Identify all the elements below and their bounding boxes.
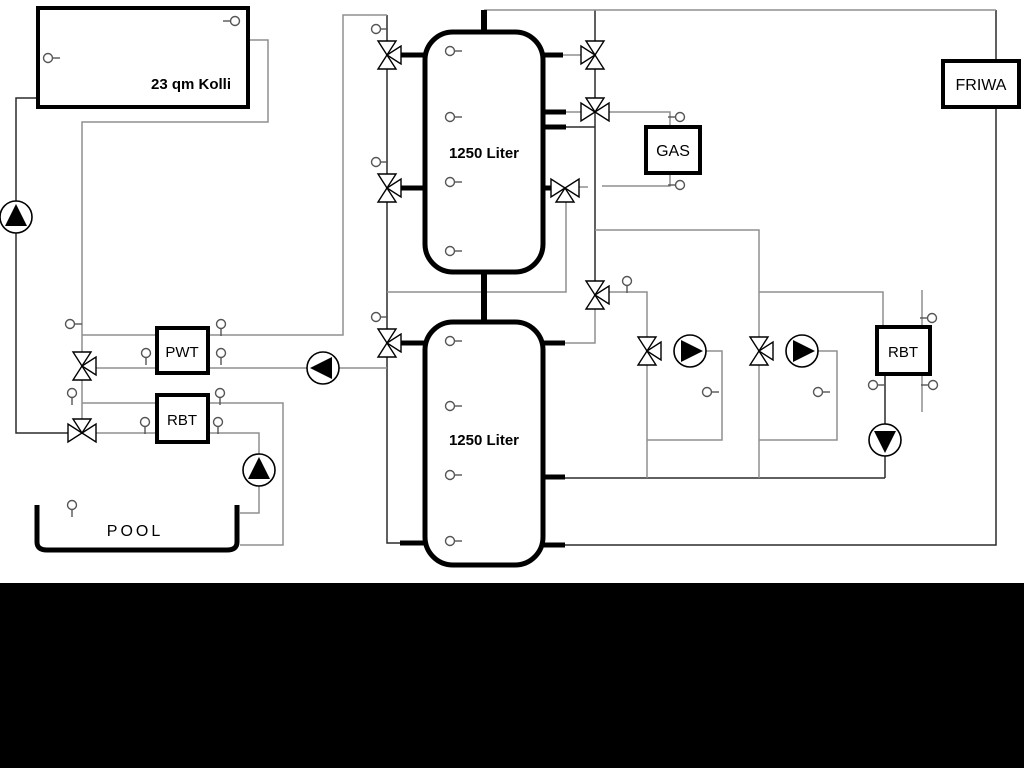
- sensor-bulb: [217, 349, 226, 358]
- schematic-page: 23 qm Kolli1250 Liter1250 LiterGASFRIWAP…: [0, 0, 1024, 768]
- bottom-black-bar: [0, 583, 1024, 768]
- sensor-bulb: [446, 471, 455, 480]
- sensor-bulb: [928, 314, 937, 323]
- friwa-box-label: FRIWA: [956, 77, 1007, 94]
- solar-pump-icon: [0, 201, 32, 233]
- sensor-bulb: [676, 181, 685, 190]
- sensor-bulb: [372, 25, 381, 34]
- sensor-bulb: [623, 277, 632, 286]
- rbt-right-box-label: RBT: [888, 344, 918, 361]
- sensor-bulb: [869, 381, 878, 390]
- sensor-bulb: [676, 113, 685, 122]
- gas-boiler-box-label: GAS: [656, 143, 690, 160]
- sensor-bulb: [446, 247, 455, 256]
- sensor-bulb: [214, 418, 223, 427]
- sensor-bulb: [216, 389, 225, 398]
- sensor-bulb: [68, 389, 77, 398]
- buffer-tank-top-label: 1250 Liter: [449, 145, 519, 162]
- sensor-bulb: [703, 388, 712, 397]
- sensor-bulb: [217, 320, 226, 329]
- buffer-tank-bottom-label: 1250 Liter: [449, 432, 519, 449]
- pwt-pump-icon: [307, 352, 339, 384]
- sensor-bulb: [446, 537, 455, 546]
- sensor-bulb: [372, 313, 381, 322]
- rbt-return-pump-icon: [869, 424, 901, 456]
- sensor-bulb: [446, 178, 455, 187]
- sensor-bulb: [68, 501, 77, 510]
- sensor-bulb: [66, 320, 75, 329]
- sensor-bulb: [44, 54, 53, 63]
- sensor-bulb: [141, 418, 150, 427]
- rbt-left-box-label: RBT: [167, 412, 197, 429]
- sensor-bulb: [372, 158, 381, 167]
- heating-pump-2-icon: [786, 335, 818, 367]
- collector-box-label: 23 qm Kolli: [151, 76, 231, 93]
- schematic-canvas: 23 qm Kolli1250 Liter1250 LiterGASFRIWAP…: [0, 0, 1024, 768]
- sensor-bulb: [446, 402, 455, 411]
- pool-pump-icon: [243, 454, 275, 486]
- pool-label: POOL: [107, 523, 163, 540]
- heating-pump-1-icon: [674, 335, 706, 367]
- pwt-box-label: PWT: [165, 344, 198, 361]
- sensor-bulb: [142, 349, 151, 358]
- sensor-bulb: [814, 388, 823, 397]
- sensor-bulb: [929, 381, 938, 390]
- sensor-bulb: [446, 113, 455, 122]
- sensor-bulb: [446, 337, 455, 346]
- sensor-bulb: [446, 47, 455, 56]
- sensor-bulb: [231, 17, 240, 26]
